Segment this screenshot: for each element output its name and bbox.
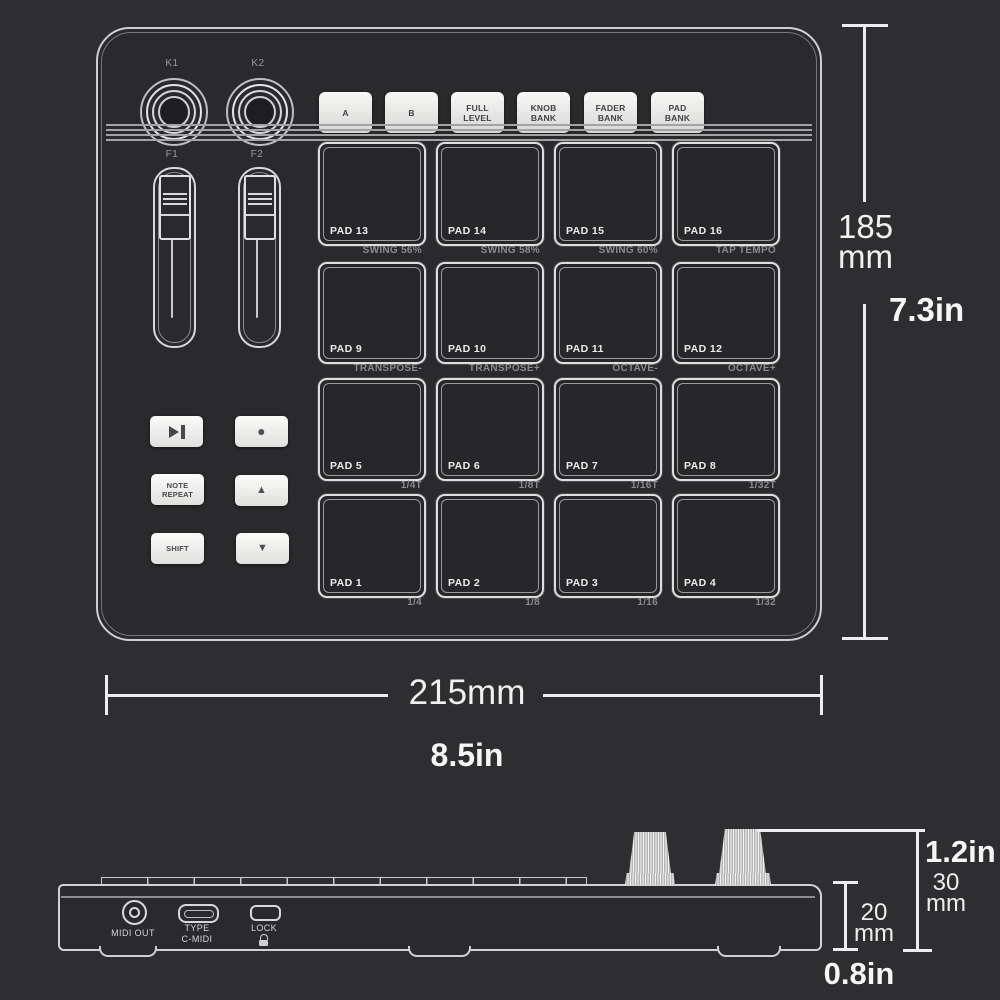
drum-pad: PAD 15 bbox=[554, 142, 662, 246]
lock-icon bbox=[259, 934, 268, 946]
side-knob-2 bbox=[718, 829, 767, 874]
pad-name-label: PAD 7 bbox=[566, 460, 598, 472]
knob-height-dim-top-line bbox=[757, 829, 925, 832]
drum-pad: PAD 13 bbox=[318, 142, 426, 246]
pad-secondary-function-label: TRANSPOSE- bbox=[316, 363, 425, 374]
pad-name-label: PAD 9 bbox=[330, 343, 362, 355]
rubber-foot bbox=[99, 946, 157, 957]
pad-name-label: PAD 4 bbox=[684, 577, 716, 589]
pad-secondary-function-label: 1/4T bbox=[316, 480, 425, 491]
knob-height-dim-bottom-cap bbox=[903, 949, 932, 952]
height-dim-line-upper bbox=[863, 24, 866, 202]
pad-name-label: PAD 5 bbox=[330, 460, 362, 472]
drum-pad: PAD 9 bbox=[318, 262, 426, 364]
pad-name-label: PAD 14 bbox=[448, 225, 486, 237]
lock-label: LOCK bbox=[240, 923, 288, 934]
width-imperial-label: 8.5in bbox=[397, 737, 537, 774]
pad-secondary-function-label: SWING 56% bbox=[316, 245, 425, 256]
pad-name-label: PAD 1 bbox=[330, 577, 362, 589]
body-height-imperial-label: 0.8in bbox=[816, 956, 902, 992]
usb-c-label: TYPE C-MIDI bbox=[171, 923, 223, 945]
pad-name-label: PAD 10 bbox=[448, 343, 486, 355]
drum-pad: PAD 7 bbox=[554, 378, 662, 481]
pad-name-label: PAD 12 bbox=[684, 343, 722, 355]
knob-height-imperial-label: 1.2in bbox=[925, 834, 996, 870]
pad-secondary-function-label: SWING 58% bbox=[434, 245, 543, 256]
pad-secondary-function-label: 1/8T bbox=[434, 480, 543, 491]
pad-name-label: PAD 15 bbox=[566, 225, 604, 237]
pad-secondary-function-label: TRANSPOSE+ bbox=[434, 363, 543, 374]
pad-name-label: PAD 13 bbox=[330, 225, 368, 237]
drum-pad: PAD 16 bbox=[672, 142, 780, 246]
body-height-dim-line bbox=[844, 881, 847, 950]
width-dim-line-right bbox=[543, 694, 821, 697]
usb-c-port bbox=[178, 904, 219, 923]
pad-grid: PAD 13SWING 56%PAD 14SWING 58%PAD 15SWIN… bbox=[0, 0, 1000, 1000]
body-height-metric-label: 20 mm bbox=[848, 902, 900, 944]
height-dim-line-lower bbox=[863, 304, 866, 638]
drum-pad: PAD 5 bbox=[318, 378, 426, 481]
side-view-bevel-line bbox=[61, 896, 815, 898]
pad-secondary-function-label: OCTAVE- bbox=[552, 363, 661, 374]
body-height-dim-bottom-cap bbox=[833, 948, 858, 951]
drum-pad: PAD 10 bbox=[436, 262, 544, 364]
lock-slot bbox=[250, 905, 281, 921]
height-metric-label: 185 mm bbox=[838, 212, 893, 272]
drum-pad: PAD 4 bbox=[672, 494, 780, 598]
pad-secondary-function-label: 1/8 bbox=[434, 597, 543, 608]
pad-name-label: PAD 2 bbox=[448, 577, 480, 589]
pad-secondary-function-label: 1/16 bbox=[552, 597, 661, 608]
drum-pad: PAD 14 bbox=[436, 142, 544, 246]
jack-hole bbox=[129, 907, 140, 918]
drum-pad: PAD 11 bbox=[554, 262, 662, 364]
knob-height-dim-line bbox=[916, 829, 919, 951]
pad-name-label: PAD 8 bbox=[684, 460, 716, 472]
drum-pad: PAD 3 bbox=[554, 494, 662, 598]
knob-height-metric-label: 30 mm bbox=[920, 872, 972, 914]
lock-icon-body bbox=[259, 940, 268, 946]
width-metric-label: 215mm bbox=[392, 678, 542, 708]
width-dim-line-left bbox=[107, 694, 388, 697]
midi-out-label: MIDI OUT bbox=[102, 928, 164, 939]
side-knob-2-base bbox=[715, 873, 771, 885]
pad-name-label: PAD 16 bbox=[684, 225, 722, 237]
pad-secondary-function-label: 1/4 bbox=[316, 597, 425, 608]
pad-secondary-function-label: TAP TEMPO bbox=[670, 245, 779, 256]
side-knob-1 bbox=[628, 832, 672, 874]
side-knob-1-base bbox=[625, 873, 675, 885]
drum-pad: PAD 2 bbox=[436, 494, 544, 598]
drum-pad: PAD 8 bbox=[672, 378, 780, 481]
drum-pad: PAD 12 bbox=[672, 262, 780, 364]
height-imperial-label: 7.3in bbox=[889, 291, 964, 329]
pad-secondary-function-label: 1/32 bbox=[670, 597, 779, 608]
pad-secondary-function-label: 1/16T bbox=[552, 480, 661, 491]
pad-secondary-function-label: SWING 60% bbox=[552, 245, 661, 256]
drum-pad: PAD 6 bbox=[436, 378, 544, 481]
drum-pad: PAD 1 bbox=[318, 494, 426, 598]
rubber-foot bbox=[717, 946, 781, 957]
pad-name-label: PAD 11 bbox=[566, 343, 604, 355]
pad-secondary-function-label: 1/32T bbox=[670, 480, 779, 491]
usb-c-port-inner bbox=[184, 910, 214, 918]
product-dimension-diagram: K1 K2 A B FULL LEVEL KNOB BANK FADER BAN… bbox=[0, 0, 1000, 1000]
pad-secondary-function-label: OCTAVE+ bbox=[670, 363, 779, 374]
pad-name-label: PAD 3 bbox=[566, 577, 598, 589]
rubber-foot bbox=[408, 946, 471, 957]
pad-name-label: PAD 6 bbox=[448, 460, 480, 472]
height-dim-bottom-cap bbox=[842, 637, 888, 640]
midi-out-jack bbox=[122, 900, 147, 925]
